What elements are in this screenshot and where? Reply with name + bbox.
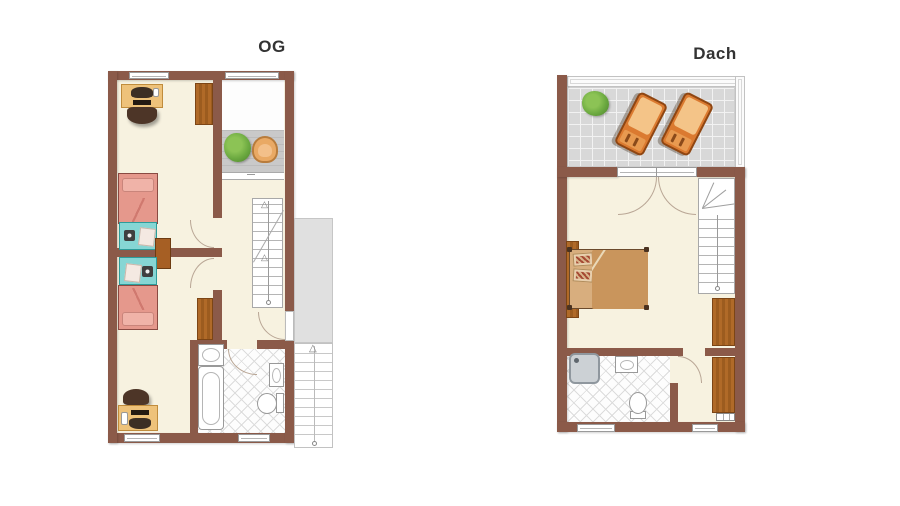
dach-stair-centerline bbox=[717, 215, 718, 291]
floor-label-dach: Dach bbox=[688, 44, 742, 64]
dach-wall-terrace-left bbox=[557, 167, 618, 177]
dach-french-door-mullion bbox=[656, 168, 657, 176]
dach-window-bottom-left bbox=[577, 424, 615, 432]
dach-terrace-railing-right bbox=[735, 76, 745, 168]
dach-bed-post-br bbox=[644, 305, 649, 310]
dach-lounger-2-stick-b bbox=[678, 137, 685, 146]
dach-wall-wardrobe-stub bbox=[705, 348, 735, 356]
dach-bed-blanket bbox=[592, 250, 648, 309]
dach-radiator bbox=[716, 413, 735, 421]
dach-bed-post-tr bbox=[644, 247, 649, 252]
dach-bed-post-bl bbox=[567, 305, 572, 310]
floor-plan-page: OG bbox=[0, 0, 900, 506]
dach-stair-circle bbox=[715, 286, 720, 291]
floor-plan-dach: Dach bbox=[0, 0, 900, 506]
dach-bed-pillow-2 bbox=[573, 268, 594, 282]
dach-terrace-railing-top bbox=[567, 76, 745, 87]
dach-shower bbox=[569, 353, 600, 384]
dach-bed-blanket-stripe bbox=[592, 250, 608, 309]
dach-bed-post-tl bbox=[567, 247, 572, 252]
dach-terrace-plant-icon bbox=[582, 91, 609, 116]
dach-lounger-1-stick-b bbox=[632, 137, 639, 146]
dach-toilet-bowl bbox=[629, 392, 647, 414]
dach-wall-right bbox=[735, 167, 745, 432]
dach-window-bottom-right bbox=[692, 424, 718, 432]
dach-staircase bbox=[698, 178, 735, 294]
dach-sink-bowl bbox=[620, 360, 634, 370]
dach-winder-line-3 bbox=[702, 182, 714, 208]
dach-bed-pillow-1 bbox=[573, 252, 594, 266]
dach-french-door bbox=[617, 167, 697, 177]
dach-wall-bath-right bbox=[670, 383, 678, 422]
dach-wardrobe-lower bbox=[712, 357, 735, 413]
dach-sink bbox=[615, 356, 638, 373]
dach-lounger-2-stick-a bbox=[670, 133, 677, 142]
dach-lounger-1-stick-a bbox=[624, 133, 631, 142]
dach-wardrobe-upper bbox=[712, 298, 735, 346]
dach-double-bed bbox=[569, 249, 648, 309]
